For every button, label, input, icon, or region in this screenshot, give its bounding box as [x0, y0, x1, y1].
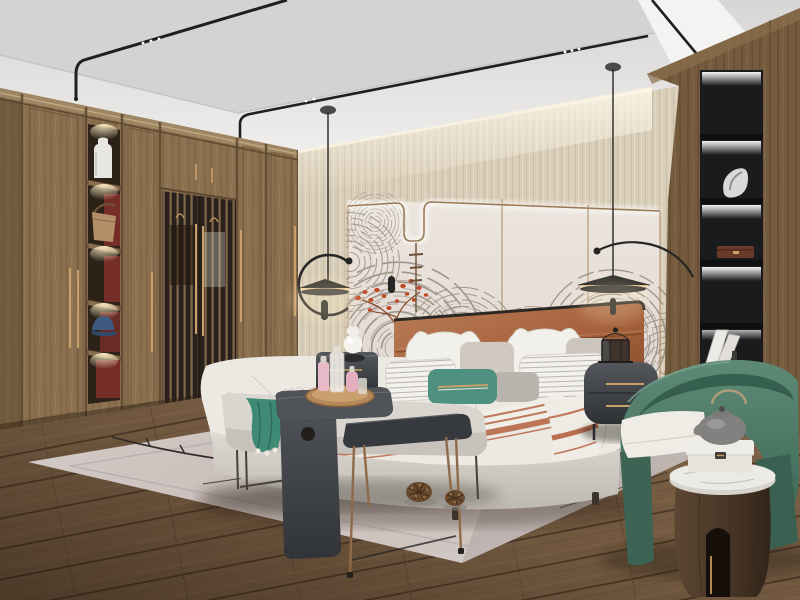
wall-spot-fixture — [388, 276, 395, 293]
pillow-teal — [428, 369, 497, 404]
display-niche-column — [88, 124, 120, 404]
pendant-glow — [291, 278, 359, 322]
pinecone-small — [445, 490, 465, 506]
table-cutout-hole — [301, 427, 315, 441]
display-shelf — [700, 70, 763, 370]
wardrobe-side-panel — [0, 88, 22, 436]
table-arch-cutout — [706, 528, 730, 597]
bedroom-scene — [0, 0, 800, 600]
shelf-box — [717, 246, 754, 258]
bedroom-render — [0, 0, 800, 600]
pinecone-large — [406, 482, 432, 502]
pillow-gray-front — [492, 372, 539, 402]
